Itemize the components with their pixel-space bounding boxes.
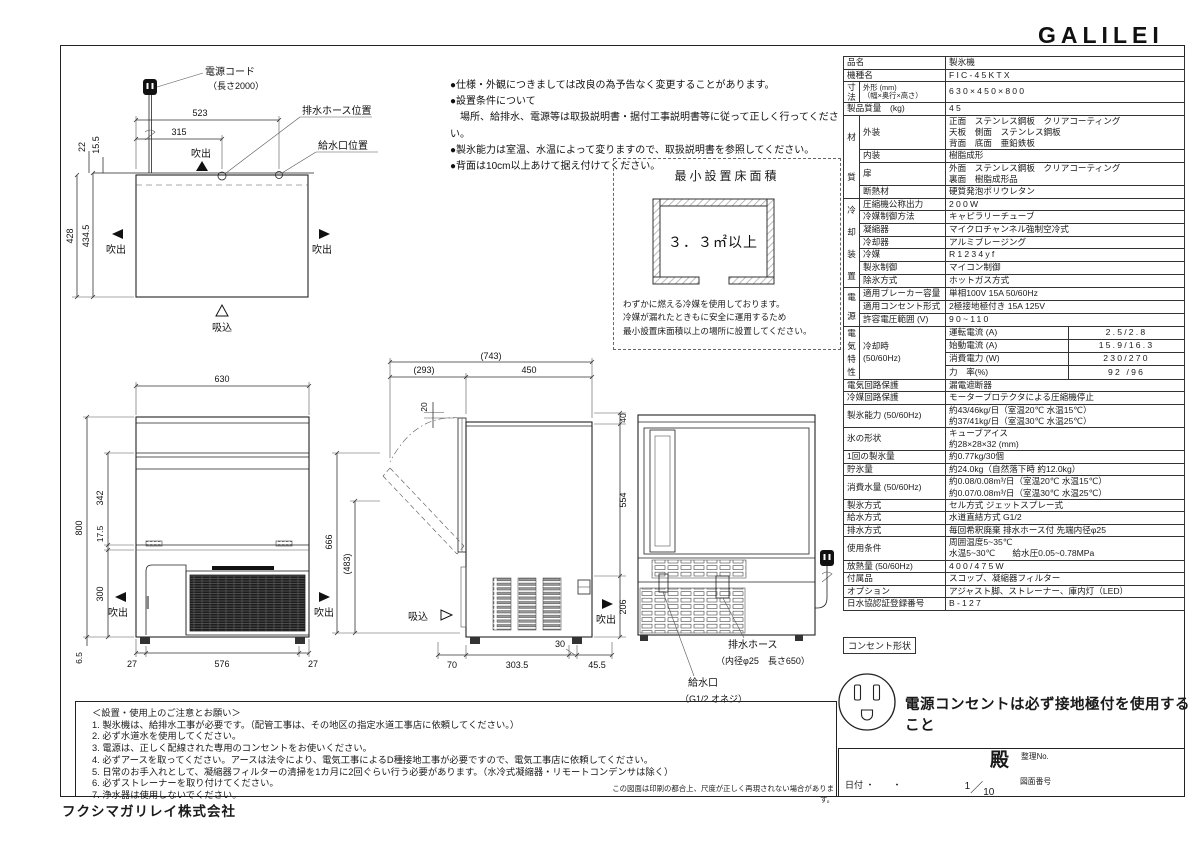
spec-cell: 230/270 bbox=[1069, 353, 1185, 366]
power-cord-label: 電源コード bbox=[205, 65, 255, 78]
addressee-cell: 殿 bbox=[839, 749, 1017, 774]
spec-cell: マイコン制御 bbox=[946, 262, 1185, 275]
dim-27-left: 27 bbox=[127, 659, 137, 669]
blow-label-left: 吹出 bbox=[106, 243, 126, 256]
spec-cell: 寸法 bbox=[844, 82, 860, 103]
min-floor-area-box: 最小設置床面積 ３．３㎡以上 わずかに燃える冷媒を使用しております。冷媒が漏れた… bbox=[613, 158, 841, 350]
spec-cell: 製氷能力 (50/60Hz) bbox=[844, 404, 946, 427]
spec-cell: 硬質発泡ポリウレタン bbox=[946, 186, 1185, 199]
spec-cell: 力 率(%) bbox=[946, 366, 1069, 379]
spec-cell: 周囲温度5~35℃水温5~30℃ 給水圧0.05~0.78MPa bbox=[946, 537, 1185, 560]
spec-cell: 日水協認証登録番号 bbox=[844, 598, 946, 611]
spec-cell: 約0.08/0.08m³/日（室温20℃ 水温15℃）約0.07/0.08m³/… bbox=[946, 476, 1185, 499]
spec-cell: アルミブレージング bbox=[946, 236, 1185, 249]
spec-cell: 圧縮機公称出力 bbox=[860, 198, 946, 211]
dim-293: (293) bbox=[413, 365, 434, 375]
dim-30: 30 bbox=[555, 639, 565, 649]
spec-cell: 1回の製氷量 bbox=[844, 451, 946, 464]
spec-cell: 毎回希釈廃棄 排水ホース付 先端内径φ25 bbox=[946, 524, 1185, 537]
spec-cell: 扉 bbox=[860, 162, 946, 185]
spec-cell: 水道直結方式 G1/2 bbox=[946, 512, 1185, 525]
spec-cell: R1234yf bbox=[946, 249, 1185, 262]
spec-cell: 漏電遮断器 bbox=[946, 379, 1185, 392]
suck-arrow-icon bbox=[216, 305, 228, 316]
galilei-logo: GALILEI bbox=[1038, 22, 1164, 49]
spec-cell: 電気特性 bbox=[844, 326, 860, 379]
spec-cell: 45 bbox=[946, 103, 1185, 116]
spec-cell: 200W bbox=[946, 198, 1185, 211]
date-label: 日付 bbox=[845, 780, 863, 790]
min-area-value: ３．３㎡以上 bbox=[668, 234, 758, 250]
dim-450: 450 bbox=[521, 365, 536, 375]
min-area-room-drawing: ３．３㎡以上 bbox=[614, 189, 840, 293]
dim-17-5: 17.5 bbox=[95, 525, 105, 542]
spec-cell: 外面 ステンレス鋼板 クリアコーティング裏面 樹脂成形品 bbox=[946, 162, 1185, 185]
spec-cell: 除氷方式 bbox=[860, 274, 946, 287]
spec-cell: 92 /96 bbox=[1069, 366, 1185, 379]
spec-cell: 給水方式 bbox=[844, 512, 946, 525]
spec-cell: 貯氷量 bbox=[844, 463, 946, 476]
dim-15-5: 15.5 bbox=[91, 136, 101, 154]
spec-cell: 冷媒回路保護 bbox=[844, 392, 946, 405]
spec-cell: 約0.77kg/30個 bbox=[946, 451, 1185, 464]
spec-cell: 630×450×800 bbox=[946, 82, 1185, 103]
dim-630: 630 bbox=[214, 374, 229, 384]
spec-cell: 冷媒 bbox=[860, 249, 946, 262]
spec-cell: セル方式 ジェットスプレー式 bbox=[946, 499, 1185, 512]
date-cell: 日付 ・ ・ bbox=[839, 774, 943, 796]
drawing-sheet: GALILEI ●仕様・外観につきましては改良の為予告なく変更することがあります… bbox=[0, 0, 1200, 848]
dim-342: 342 bbox=[95, 490, 105, 505]
spec-cell: 冷却時(50/60Hz) bbox=[860, 326, 946, 379]
company-name: フクシマガリレイ株式会社 bbox=[62, 800, 236, 820]
drain-pos-label: 排水ホース位置 bbox=[302, 104, 372, 117]
scale-numerator: 1 bbox=[965, 781, 971, 792]
spec-cell: 排水方式 bbox=[844, 524, 946, 537]
spec-cell: 放熱量 (50/60Hz) bbox=[844, 560, 946, 573]
spec-cell: 90~110 bbox=[946, 313, 1185, 326]
dim-666: 666 bbox=[324, 534, 334, 549]
spec-cell: 400/475W bbox=[946, 560, 1185, 573]
spec-cell: 冷却器 bbox=[860, 236, 946, 249]
spec-cell: 外形 (mm)（幅×奥行×高さ） bbox=[860, 82, 946, 103]
spec-cell: モータープロテクタによる圧縮機停止 bbox=[946, 392, 1185, 405]
spec-cell: アジャスト脚、ストレーナー、庫内灯（LED） bbox=[946, 585, 1185, 598]
blow-label-left: 吹出 bbox=[108, 606, 128, 619]
min-area-title: 最小設置床面積 bbox=[614, 167, 840, 184]
suck-arrow-icon bbox=[441, 610, 452, 620]
spec-cell: 断熱材 bbox=[860, 186, 946, 199]
spec-cell: 適用コンセント形式 bbox=[860, 300, 946, 313]
supply-port-label: 給水口 bbox=[688, 676, 718, 689]
spec-cell: 製氷機 bbox=[946, 57, 1185, 70]
spec-cell: 2極接地極付き 15A 125V bbox=[946, 300, 1185, 313]
spec-cell: 正面 ステンレス鋼板 クリアコーティング天板 側面 ステンレス鋼板背面 底面 亜… bbox=[946, 115, 1185, 150]
blow-arrow-up-icon bbox=[196, 161, 208, 171]
scale-denominator: 10 bbox=[983, 787, 994, 798]
spec-cell: 消費電力 (W) bbox=[946, 353, 1069, 366]
dim-315: 315 bbox=[171, 127, 186, 137]
spec-cell: 約24.0kg（自然落下時 約12.0kg） bbox=[946, 463, 1185, 476]
usage-notes-title: ＜設置・使用上のご注意とお願い＞ bbox=[92, 708, 836, 720]
spec-cell: ホットガス方式 bbox=[946, 274, 1185, 287]
spec-cell: 電源 bbox=[844, 287, 860, 326]
spec-cell: キャピラリーチューブ bbox=[946, 211, 1185, 224]
spec-cell: 製氷方式 bbox=[844, 499, 946, 512]
spec-cell: 機種名 bbox=[844, 69, 946, 82]
spec-cell: 適用ブレーカー容量 bbox=[860, 287, 946, 300]
spec-cell: 使用条件 bbox=[844, 537, 946, 560]
spec-cell: 氷の形状 bbox=[844, 427, 946, 450]
spec-cell: 運転電流 (A) bbox=[946, 326, 1069, 339]
suck-label: 吸込 bbox=[212, 322, 232, 334]
min-area-caption: わずかに燃える冷媒を使用しております。冷媒が漏れたときもに安全に運用するため最小… bbox=[623, 298, 812, 338]
spec-cell: 製品質量 (kg) bbox=[844, 103, 946, 116]
dim-20: 20 bbox=[419, 402, 429, 412]
spec-cell: マイクロチャンネル強制空冷式 bbox=[946, 223, 1185, 236]
blow-arrow-left-icon bbox=[115, 592, 126, 602]
spec-cell: 約43/46kg/日（室温20℃ 水温15℃）約37/41kg/日（室温30℃ … bbox=[946, 404, 1185, 427]
dim-800: 800 bbox=[74, 520, 84, 535]
spec-cell: キューブアイス約28×28×32 (mm) bbox=[946, 427, 1185, 450]
dim-523: 523 bbox=[192, 108, 207, 118]
power-cord-length: （長さ2000） bbox=[208, 81, 264, 91]
dim-70: 70 bbox=[447, 660, 457, 670]
dim-27-right: 27 bbox=[308, 659, 318, 669]
blow-label-top: 吹出 bbox=[191, 147, 211, 160]
spec-cell: 単相100V 15A 50/60Hz bbox=[946, 287, 1185, 300]
spec-cell: 品名 bbox=[844, 57, 946, 70]
dim-303-5: 303.5 bbox=[506, 660, 529, 670]
power-plug-icon bbox=[820, 550, 834, 566]
outlet-warning-text: 電源コンセントは必ず接地極付を使用すること bbox=[905, 693, 1200, 735]
spec-cell: 材質 bbox=[844, 115, 860, 198]
dim-554: 554 bbox=[618, 492, 628, 507]
spec-cell: 15.9/16.3 bbox=[1069, 339, 1185, 352]
blow-arrow-right-icon bbox=[319, 229, 330, 239]
supply-pos-label: 給水口位置 bbox=[318, 139, 368, 152]
dim-300: 300 bbox=[95, 586, 105, 601]
registration-no-cell: 整理No. bbox=[1017, 749, 1183, 774]
dim-6-5: 6.5 bbox=[74, 652, 84, 664]
spec-cell: 凝縮器 bbox=[860, 223, 946, 236]
blow-label-right: 吹出 bbox=[312, 243, 332, 256]
spec-cell: スコップ、凝縮器フィルター bbox=[946, 573, 1185, 586]
dim-483: (483) bbox=[342, 553, 352, 574]
spec-cell: 製氷制御 bbox=[860, 262, 946, 275]
drain-hose-note: （内径φ25 長さ650） bbox=[716, 655, 810, 666]
dim-743: (743) bbox=[480, 351, 501, 361]
power-plug-icon bbox=[143, 79, 157, 95]
spec-table: 品名製氷機機種名FIC-45KTX寸法外形 (mm)（幅×奥行×高さ）630×4… bbox=[843, 56, 1184, 611]
spec-cell: 消費水量 (50/60Hz) bbox=[844, 476, 946, 499]
side-view-drawing: (743) (293) 450 20 40 554 206 吹出 666 (48… bbox=[320, 352, 650, 682]
scale-cell: 1／10 bbox=[943, 774, 1016, 796]
spec-cell: 内装 bbox=[860, 150, 946, 163]
dim-22: 22 bbox=[77, 142, 87, 152]
print-disclaimer: この図面は印刷の都合上、尺度が正しく再現されない場合があります。 bbox=[600, 783, 834, 805]
blow-arrow-right-icon bbox=[602, 599, 613, 609]
dim-40: 40 bbox=[618, 413, 628, 423]
spec-cell: 2.5/2.8 bbox=[1069, 326, 1185, 339]
spec-cell: 付属品 bbox=[844, 573, 946, 586]
drain-hose-label: 排水ホース bbox=[728, 638, 778, 651]
plan-view-drawing: 電源コード （長さ2000） 523 315 吹出 排水ホース位置 給水口位置 … bbox=[60, 48, 450, 348]
drawing-no-cell: 図面番号 bbox=[1016, 774, 1183, 796]
dim-576: 576 bbox=[214, 659, 229, 669]
dim-206: 206 bbox=[618, 599, 628, 614]
date-value: ・ ・ bbox=[866, 780, 902, 790]
title-block: 殿 整理No. 日付 ・ ・ 1／10 図面番号 bbox=[838, 748, 1185, 797]
spec-cell: オプション bbox=[844, 585, 946, 598]
rear-view-drawing: 排水ホース （内径φ25 長さ650） 給水口 （G1/2 オネジ） bbox=[628, 402, 858, 712]
outlet-icon bbox=[836, 668, 902, 740]
spec-cell: 冷媒制御方法 bbox=[860, 211, 946, 224]
spec-cell: 許容電圧範囲 (V) bbox=[860, 313, 946, 326]
spec-cell: 冷却装置 bbox=[844, 198, 860, 287]
spec-cell: 電気回路保護 bbox=[844, 379, 946, 392]
spec-cell: 樹脂成形 bbox=[946, 150, 1185, 163]
spec-cell: FIC-45KTX bbox=[946, 69, 1185, 82]
spec-cell: B-127 bbox=[946, 598, 1185, 611]
scale-slash: ／ bbox=[970, 780, 983, 795]
dim-428: 428 bbox=[65, 228, 75, 243]
dim-45-5: 45.5 bbox=[588, 660, 606, 670]
dim-434-5: 434.5 bbox=[81, 225, 91, 248]
outlet-shape-label: コンセント形状 bbox=[843, 637, 916, 654]
blow-label: 吹出 bbox=[596, 613, 616, 626]
suck-label: 吸込 bbox=[408, 611, 428, 623]
spec-cell: 外装 bbox=[860, 115, 946, 150]
blow-arrow-left-icon bbox=[112, 229, 123, 239]
spec-cell: 始動電流 (A) bbox=[946, 339, 1069, 352]
